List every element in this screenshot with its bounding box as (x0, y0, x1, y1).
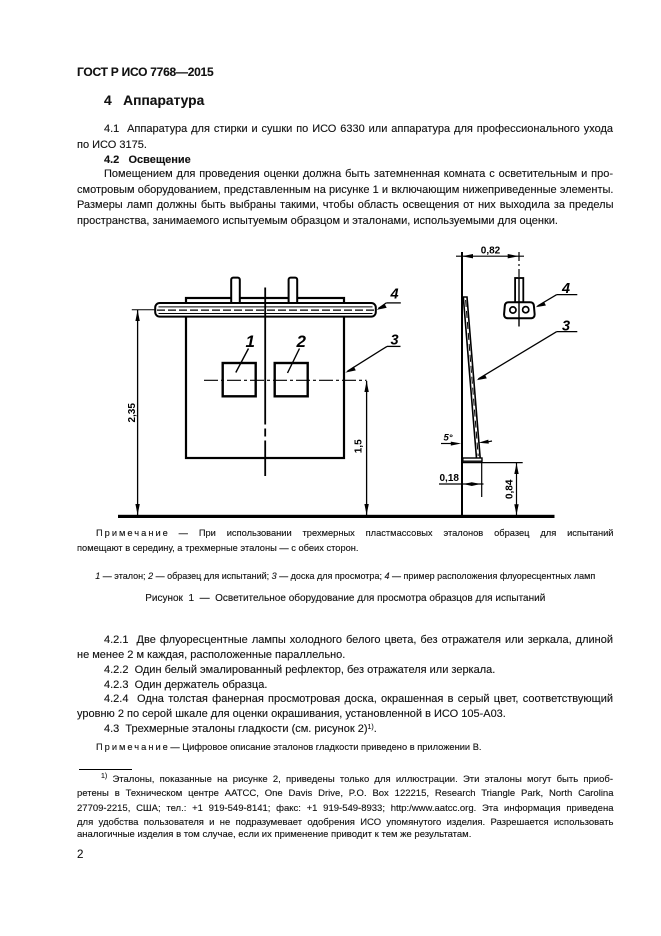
svg-text:2,35: 2,35 (127, 403, 138, 423)
svg-text:1: 1 (246, 332, 255, 351)
svg-text:0,84: 0,84 (505, 479, 516, 499)
svg-text:2: 2 (296, 332, 307, 351)
svg-text:1,5: 1,5 (354, 439, 365, 453)
svg-text:4: 4 (390, 287, 399, 303)
svg-text:0,18: 0,18 (440, 473, 460, 484)
svg-text:0,82: 0,82 (481, 246, 501, 257)
